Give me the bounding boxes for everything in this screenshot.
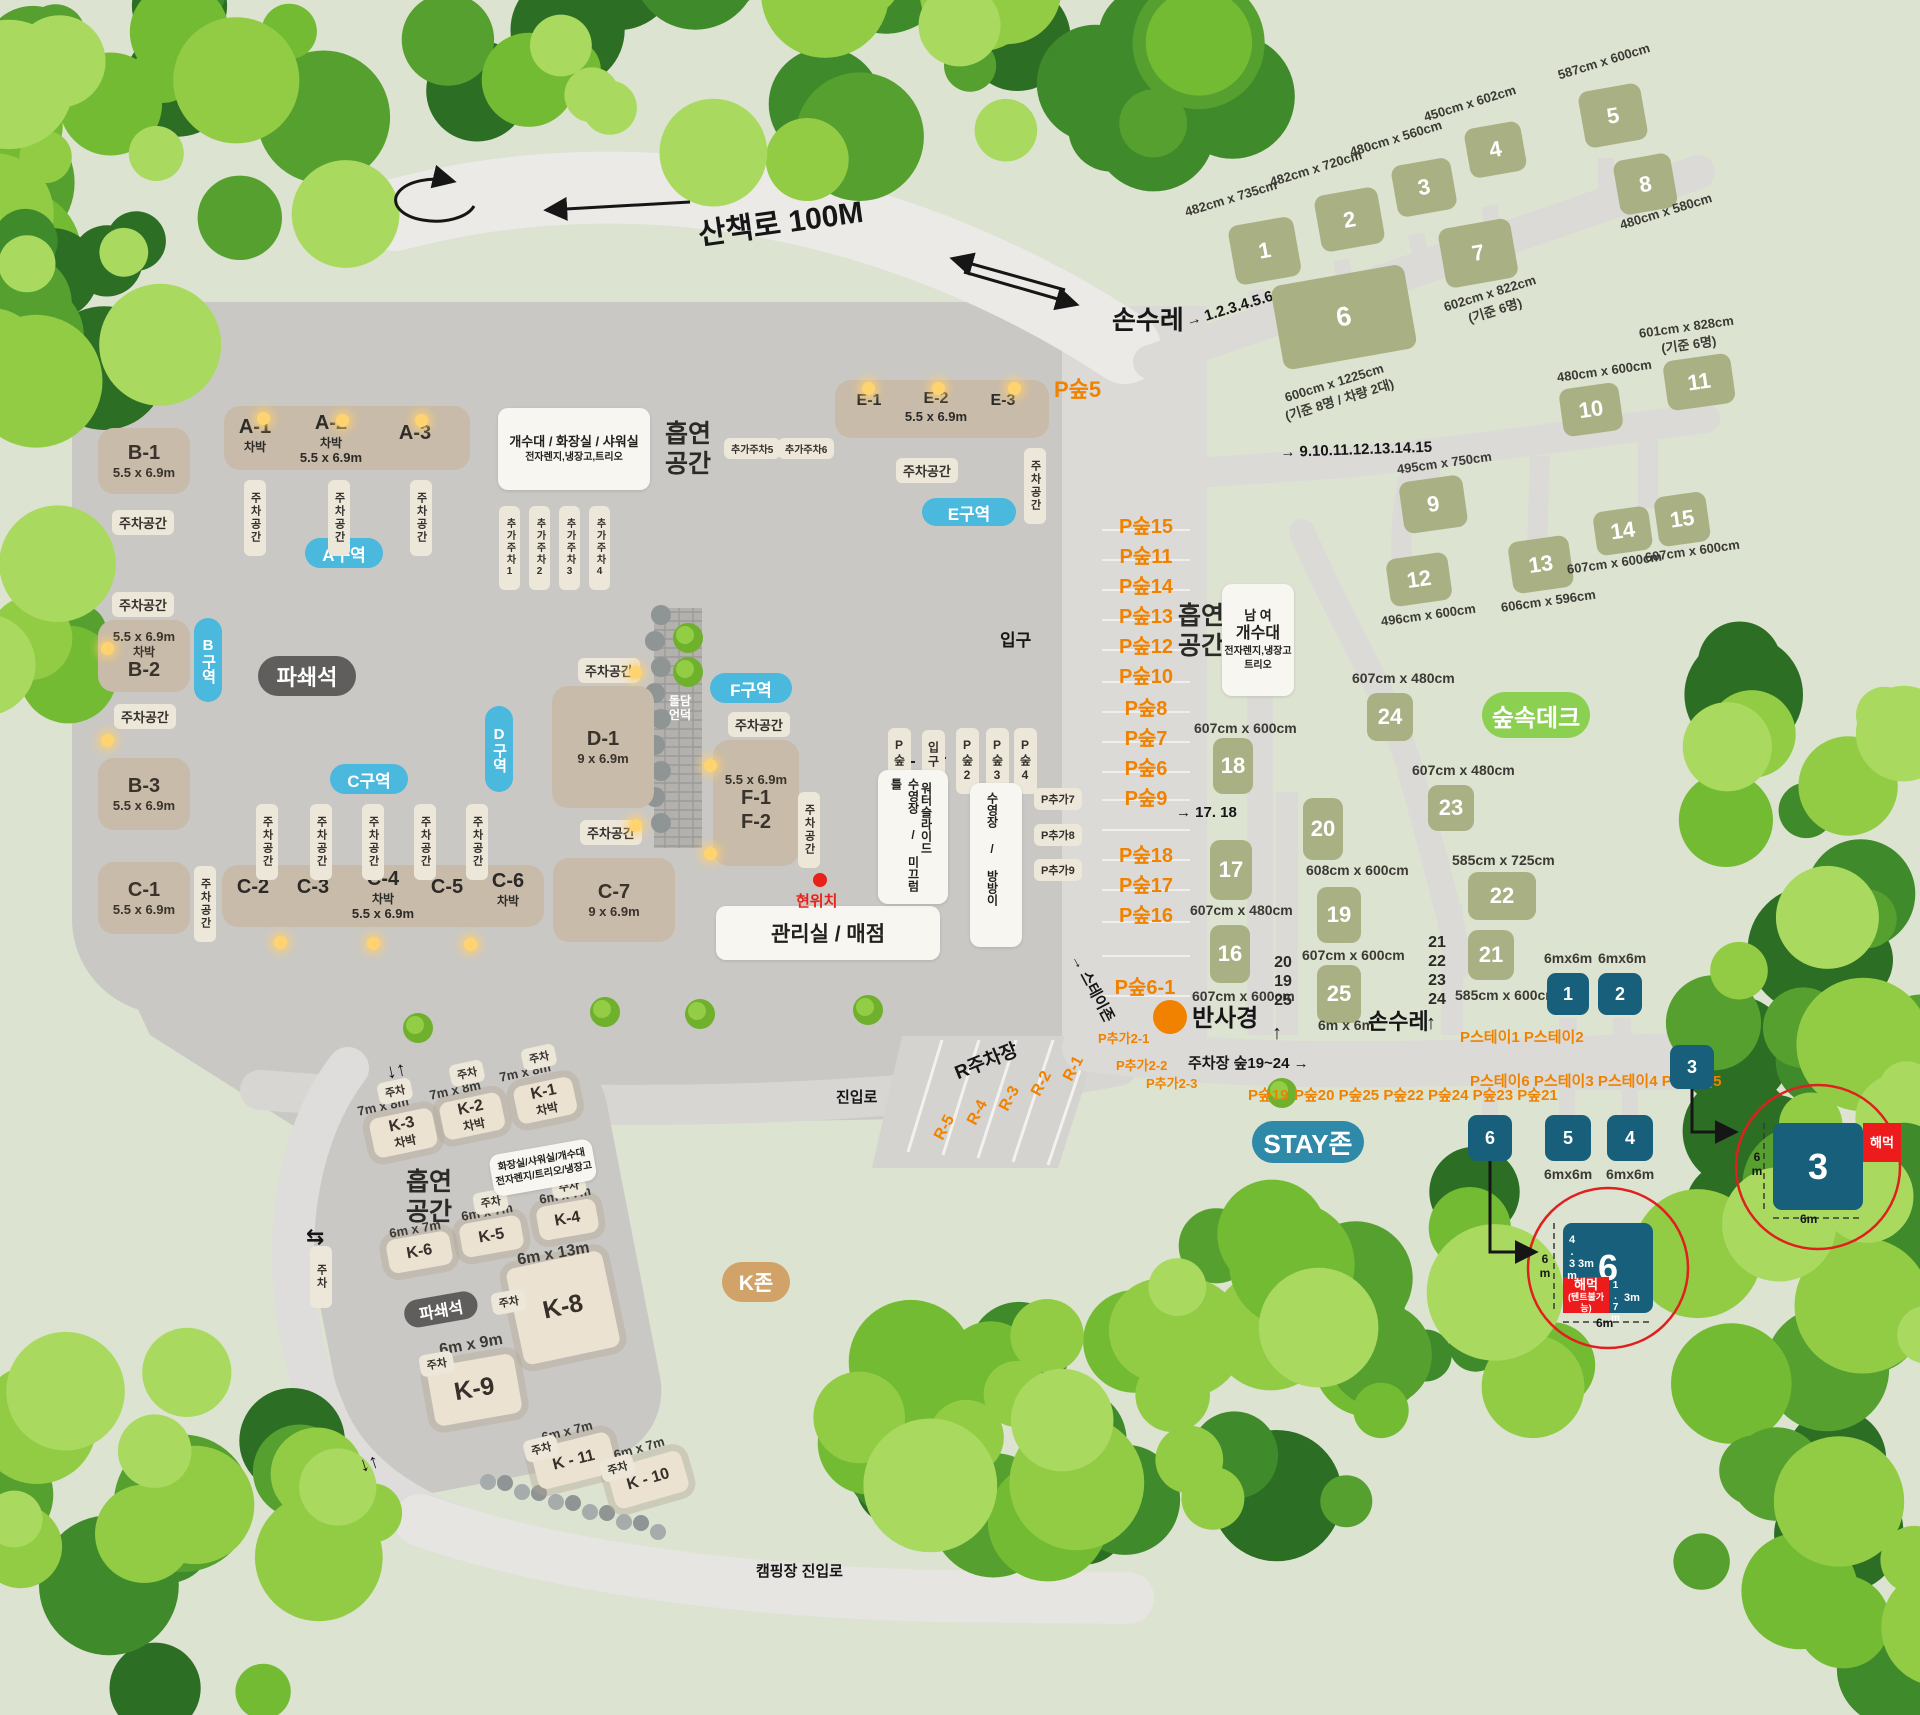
dim-4: 450cm x 602cm bbox=[1422, 82, 1518, 124]
smoking-area-main: 흡연공간 bbox=[646, 420, 730, 479]
parking-space-v[interactable]: 주차공간 bbox=[362, 804, 384, 880]
p-stay-1-2: P스테이1 P스테이2 bbox=[1460, 1026, 1584, 1047]
dim-6: 600cm x 1225cm (기준 8명 / 차량 2대) bbox=[1278, 359, 1396, 425]
light-dot bbox=[257, 412, 270, 425]
arrow-leftright: ⇆ bbox=[306, 1224, 324, 1250]
parking-space-v[interactable]: 주차공간 bbox=[1024, 448, 1046, 524]
forest-site-21[interactable]: 21 bbox=[1468, 930, 1514, 980]
site-B-2[interactable]: 5.5 x 6.9m차박B-2 bbox=[98, 620, 190, 692]
light-dot bbox=[862, 382, 875, 395]
arrow-updown-2: ↓↑ bbox=[356, 1450, 382, 1478]
forest-site-16[interactable]: 16 bbox=[1210, 925, 1250, 983]
stay-zone-badge[interactable]: STAY존 bbox=[1252, 1121, 1364, 1163]
extra-parking-6[interactable]: 추가주차6 bbox=[778, 438, 834, 459]
dim-19: 607cm x 600cm bbox=[1302, 947, 1405, 963]
site-E-3: E-3 bbox=[980, 392, 1026, 411]
detail3-6m-bottom: 6m bbox=[1800, 1212, 1817, 1226]
site-A-3: A-3 bbox=[392, 422, 438, 446]
parking-space-v[interactable]: 주차공간 bbox=[244, 480, 266, 556]
forest-site-4[interactable]: 4 bbox=[1463, 120, 1528, 179]
p-forest-14: P숲14 bbox=[1108, 570, 1184, 599]
forest-site-10[interactable]: 10 bbox=[1558, 382, 1624, 438]
forest-site-6[interactable]: 6 bbox=[1270, 264, 1418, 371]
k-zone-badge[interactable]: K존 bbox=[722, 1262, 790, 1302]
forest-site-7[interactable]: 7 bbox=[1437, 217, 1519, 289]
stay-site-3-detail[interactable]: 3 bbox=[1773, 1123, 1863, 1210]
site-K-3[interactable]: K-3차박 bbox=[368, 1107, 439, 1159]
forest-site-2[interactable]: 2 bbox=[1313, 186, 1386, 253]
dim-11: 601cm x 828cm (기준 6명) bbox=[1638, 313, 1737, 360]
detail6-1-7m: 1.7m bbox=[1610, 1280, 1621, 1310]
facility-main: 개수대 / 화장실 / 샤워실전자렌지,냉장고,트리오 bbox=[498, 408, 650, 490]
dim-20: 608cm x 600cm bbox=[1306, 862, 1409, 878]
stay-dim-2: 6mx6m bbox=[1598, 950, 1646, 966]
dim-24: 607cm x 480cm bbox=[1352, 670, 1455, 686]
route-17-18: → 17. 18 bbox=[1176, 804, 1237, 821]
parking-space[interactable]: 주차공간 bbox=[896, 458, 958, 483]
r-1: R-1 bbox=[1060, 1053, 1088, 1084]
light-dot bbox=[629, 819, 642, 832]
forest-site-15[interactable]: 15 bbox=[1653, 491, 1711, 548]
parking-space-v[interactable]: 주차공간 bbox=[328, 480, 350, 556]
parking-space-v[interactable]: 주차공간 bbox=[310, 804, 332, 880]
forest-site-3[interactable]: 3 bbox=[1390, 157, 1458, 219]
stay-site-3[interactable]: 3 bbox=[1670, 1045, 1714, 1089]
light-dot bbox=[629, 666, 642, 679]
forest-site-1[interactable]: 1 bbox=[1227, 216, 1302, 287]
walkway-label: 산책로 100M bbox=[695, 187, 866, 254]
parking-space-v[interactable]: 주차공간 bbox=[466, 804, 488, 880]
site-K-1[interactable]: K-1차박 bbox=[512, 1076, 579, 1126]
hammock-3: 해먹 bbox=[1863, 1123, 1901, 1162]
stay-site-1[interactable]: 1 bbox=[1547, 973, 1589, 1015]
parking-space[interactable]: 주차공간 bbox=[112, 510, 174, 535]
dim-10: 480cm x 600cm bbox=[1556, 357, 1653, 385]
forest-deck-badge[interactable]: 숲속데크 bbox=[1482, 692, 1590, 738]
detail6-6m-bottom: 6m bbox=[1596, 1316, 1613, 1330]
extra-parking-1[interactable]: 추가주차1 bbox=[499, 506, 520, 590]
p-forest-9: P숲9 bbox=[1108, 782, 1184, 811]
parking-space-v[interactable]: 주차공간 bbox=[414, 804, 436, 880]
parking-space[interactable]: 주차공간 bbox=[112, 592, 174, 617]
r-4: R-4 bbox=[964, 1097, 992, 1128]
p-extra-2-1: P추가2-1 bbox=[1098, 1028, 1149, 1047]
site-C-7[interactable]: C-79 x 6.9m bbox=[553, 858, 675, 942]
dim-23: 607cm x 480cm bbox=[1412, 762, 1515, 778]
dim-22: 585cm x 725cm bbox=[1452, 852, 1555, 868]
pool-slide-label: 수영장 / 미끄럼틀 bbox=[888, 778, 922, 898]
dim-1: 482cm x 735cm bbox=[1183, 177, 1279, 219]
light-dot bbox=[415, 414, 428, 427]
extra-parking-2[interactable]: 추가주차2 bbox=[529, 506, 550, 590]
parking-space[interactable]: 주차공간 bbox=[114, 704, 176, 729]
light-dot bbox=[464, 938, 477, 951]
light-dot bbox=[336, 414, 349, 427]
detail6-6m-left: 6m bbox=[1538, 1252, 1552, 1282]
detail6-4-3m: 4.3m bbox=[1566, 1234, 1578, 1272]
site-C-1[interactable]: C-15.5 x 6.9m bbox=[98, 862, 190, 934]
stay-dim-1: 6mx6m bbox=[1544, 950, 1592, 966]
stay-dim-5: 6mx6m bbox=[1544, 1166, 1592, 1182]
mirror-dot bbox=[1153, 1000, 1187, 1034]
forest-site-5[interactable]: 5 bbox=[1577, 82, 1649, 149]
zone-F-badge[interactable]: F구역 bbox=[710, 673, 792, 703]
forest-site-23[interactable]: 23 bbox=[1428, 785, 1474, 831]
dim-13: 606cm x 596cm bbox=[1500, 587, 1597, 615]
forest-site-19[interactable]: 19 bbox=[1317, 887, 1361, 943]
detail3-6m-left: 6m bbox=[1750, 1150, 1764, 1180]
smoking-area-k: 흡연공간 bbox=[394, 1168, 464, 1227]
queue-20-19-25: 201925 bbox=[1266, 954, 1300, 1011]
entrance-road-label: 진입로 bbox=[836, 1086, 877, 1107]
r-3: R-3 bbox=[996, 1083, 1024, 1114]
dim-5: 587cm x 600cm bbox=[1556, 40, 1652, 82]
r-parking-label: R주차장 bbox=[950, 1035, 1021, 1085]
zone-E-badge[interactable]: E구역 bbox=[922, 498, 1016, 526]
stay-site-6[interactable]: 6 bbox=[1468, 1115, 1512, 1161]
parking-space-v[interactable]: 주차공간 bbox=[798, 792, 820, 868]
forest-site-9[interactable]: 9 bbox=[1398, 474, 1469, 534]
p-forest-7: P숲7 bbox=[1108, 722, 1184, 751]
dim-25: 6m x 6m bbox=[1318, 1017, 1374, 1033]
forest-site-24[interactable]: 24 bbox=[1367, 693, 1413, 741]
campground-map: 산책로 100M 손수레 관리실 / 매점 현위치 반사경 STAY존 K존 숲… bbox=[0, 0, 1920, 1715]
arrow-updown-1: ↓↑ bbox=[384, 1058, 408, 1085]
forest-site-20[interactable]: 20 bbox=[1303, 798, 1343, 860]
light-dot bbox=[932, 382, 945, 395]
parking-chip[interactable]: 주차 bbox=[520, 1043, 558, 1072]
entrance-label-top: 입구 bbox=[1000, 626, 1031, 651]
p-extra-2-2: P추가2-2 bbox=[1116, 1055, 1167, 1074]
site-A-2: A-2차박5.5 x 6.9m bbox=[294, 412, 368, 465]
hammock-6: 해먹(텐트불가능) bbox=[1563, 1277, 1609, 1313]
site-C-6: C-6차박 bbox=[482, 870, 534, 908]
forest-site-11[interactable]: 11 bbox=[1662, 353, 1736, 412]
route-9-15: → 9.10.11.12.13.14.15 bbox=[1280, 439, 1432, 461]
light-dot bbox=[101, 642, 114, 655]
extra-parking-5[interactable]: 추가주차5 bbox=[724, 438, 780, 459]
site-E-2: E-25.5 x 6.9m bbox=[900, 390, 972, 424]
r-5: R-5 bbox=[931, 1112, 959, 1143]
p-forest-16: P숲16 bbox=[1108, 899, 1184, 928]
site-B-3[interactable]: B-35.5 x 6.9m bbox=[98, 758, 190, 830]
arrow-up-1: ↑ bbox=[1272, 1022, 1282, 1045]
dim-18: 607cm x 600cm bbox=[1194, 720, 1297, 736]
dim-21: 585cm x 600cm bbox=[1455, 987, 1558, 1003]
forest-site-18[interactable]: 18 bbox=[1213, 738, 1253, 794]
stay-site-2[interactable]: 2 bbox=[1598, 973, 1642, 1015]
light-dot bbox=[704, 847, 717, 860]
p-forest-5: P숲5 bbox=[1054, 372, 1101, 404]
stay-site-5[interactable]: 5 bbox=[1545, 1115, 1591, 1161]
handcart-top-label: 손수레 bbox=[1112, 300, 1184, 337]
r-2: R-2 bbox=[1028, 1068, 1056, 1099]
p-forest-8: P숲8 bbox=[1108, 692, 1184, 721]
p-extra-8[interactable]: P추가8 bbox=[1034, 824, 1082, 846]
handcart-right: 손수레 bbox=[1368, 1004, 1429, 1036]
parking-forest-19-24: 주차장 숲19~24 → bbox=[1188, 1052, 1309, 1073]
stone-hill-label: 돌담언덕 bbox=[660, 694, 700, 722]
zone-B-badge[interactable]: B구역 bbox=[194, 618, 222, 702]
forest-site-22[interactable]: 22 bbox=[1468, 872, 1536, 920]
zone-D-badge[interactable]: D구역 bbox=[485, 706, 513, 792]
p-forest-10: P숲10 bbox=[1108, 660, 1184, 689]
p-forest-19: P숲19 bbox=[1248, 1084, 1289, 1105]
parking-space[interactable]: 주차공간 bbox=[728, 712, 790, 737]
detail6-3m-top: 3m bbox=[1578, 1258, 1594, 1270]
forest-site-17[interactable]: 17 bbox=[1210, 840, 1252, 900]
p-forest-6-1: P숲6-1 bbox=[1102, 971, 1188, 1000]
light-dot bbox=[101, 734, 114, 747]
light-dot bbox=[1008, 382, 1021, 395]
extra-parking-4[interactable]: 추가주차4 bbox=[589, 506, 610, 590]
stay-dim-4: 6mx6m bbox=[1606, 1166, 1654, 1182]
pool-trampoline-label: 수영장 / 방방이 bbox=[984, 792, 1001, 940]
site-D-1[interactable]: D-19 x 6.9m bbox=[552, 686, 654, 808]
forest-site-13[interactable]: 13 bbox=[1507, 535, 1575, 595]
p-extra-2-3: P추가2-3 bbox=[1146, 1073, 1197, 1092]
p-forest-18: P숲18 bbox=[1108, 839, 1184, 868]
camp-entrance-label: 캠핑장 진입로 bbox=[756, 1560, 843, 1581]
site-B-1[interactable]: B-15.5 x 6.9m bbox=[98, 428, 190, 494]
parking-space-v[interactable]: 주차공간 bbox=[194, 866, 216, 942]
p-forest-15: P숲15 bbox=[1108, 510, 1184, 539]
crushed-stone-k[interactable]: 파쇄석 bbox=[402, 1289, 480, 1329]
site-F[interactable]: 5.5 x 6.9mF-1F-2 bbox=[713, 740, 799, 866]
stay-site-4[interactable]: 4 bbox=[1607, 1115, 1653, 1161]
zone-C-badge[interactable]: C구역 bbox=[330, 764, 408, 794]
office-store[interactable]: 관리실 / 매점 bbox=[716, 906, 940, 960]
light-dot bbox=[704, 759, 717, 772]
p-forest-11: P숲11 bbox=[1108, 540, 1184, 569]
parking-chip-v[interactable]: 주차 bbox=[310, 1246, 332, 1308]
site-A-1: A-1차박 bbox=[232, 416, 278, 454]
detail6-3m-right: 3m bbox=[1624, 1292, 1640, 1304]
light-dot bbox=[274, 936, 287, 949]
forest-site-25[interactable]: 25 bbox=[1317, 965, 1361, 1023]
extra-parking-3[interactable]: 추가주차3 bbox=[559, 506, 580, 590]
p-extra-7[interactable]: P추가7 bbox=[1034, 788, 1082, 810]
dim-17: 607cm x 480cm bbox=[1190, 902, 1293, 918]
parking-space-v[interactable]: 주차공간 bbox=[410, 480, 432, 556]
queue-21-24: 21222324 bbox=[1420, 934, 1454, 1010]
p-forest-17: P숲17 bbox=[1108, 869, 1184, 898]
forest-site-12[interactable]: 12 bbox=[1385, 551, 1453, 607]
parking-space-v[interactable]: 주차공간 bbox=[256, 804, 278, 880]
facility-right: 남 여개수대전자렌지,냉장고트리오 bbox=[1222, 584, 1294, 696]
p-forest-6: P숲6 bbox=[1108, 752, 1184, 781]
light-dot bbox=[367, 937, 380, 950]
dim-2: 482cm x 720cm bbox=[1268, 147, 1364, 189]
crushed-stone-badge[interactable]: 파쇄석 bbox=[258, 656, 356, 696]
p-extra-9[interactable]: P추가9 bbox=[1034, 859, 1082, 881]
current-location-label: 현위치 bbox=[796, 890, 837, 911]
waterslide-label: 워터슬라이드 bbox=[918, 782, 935, 888]
